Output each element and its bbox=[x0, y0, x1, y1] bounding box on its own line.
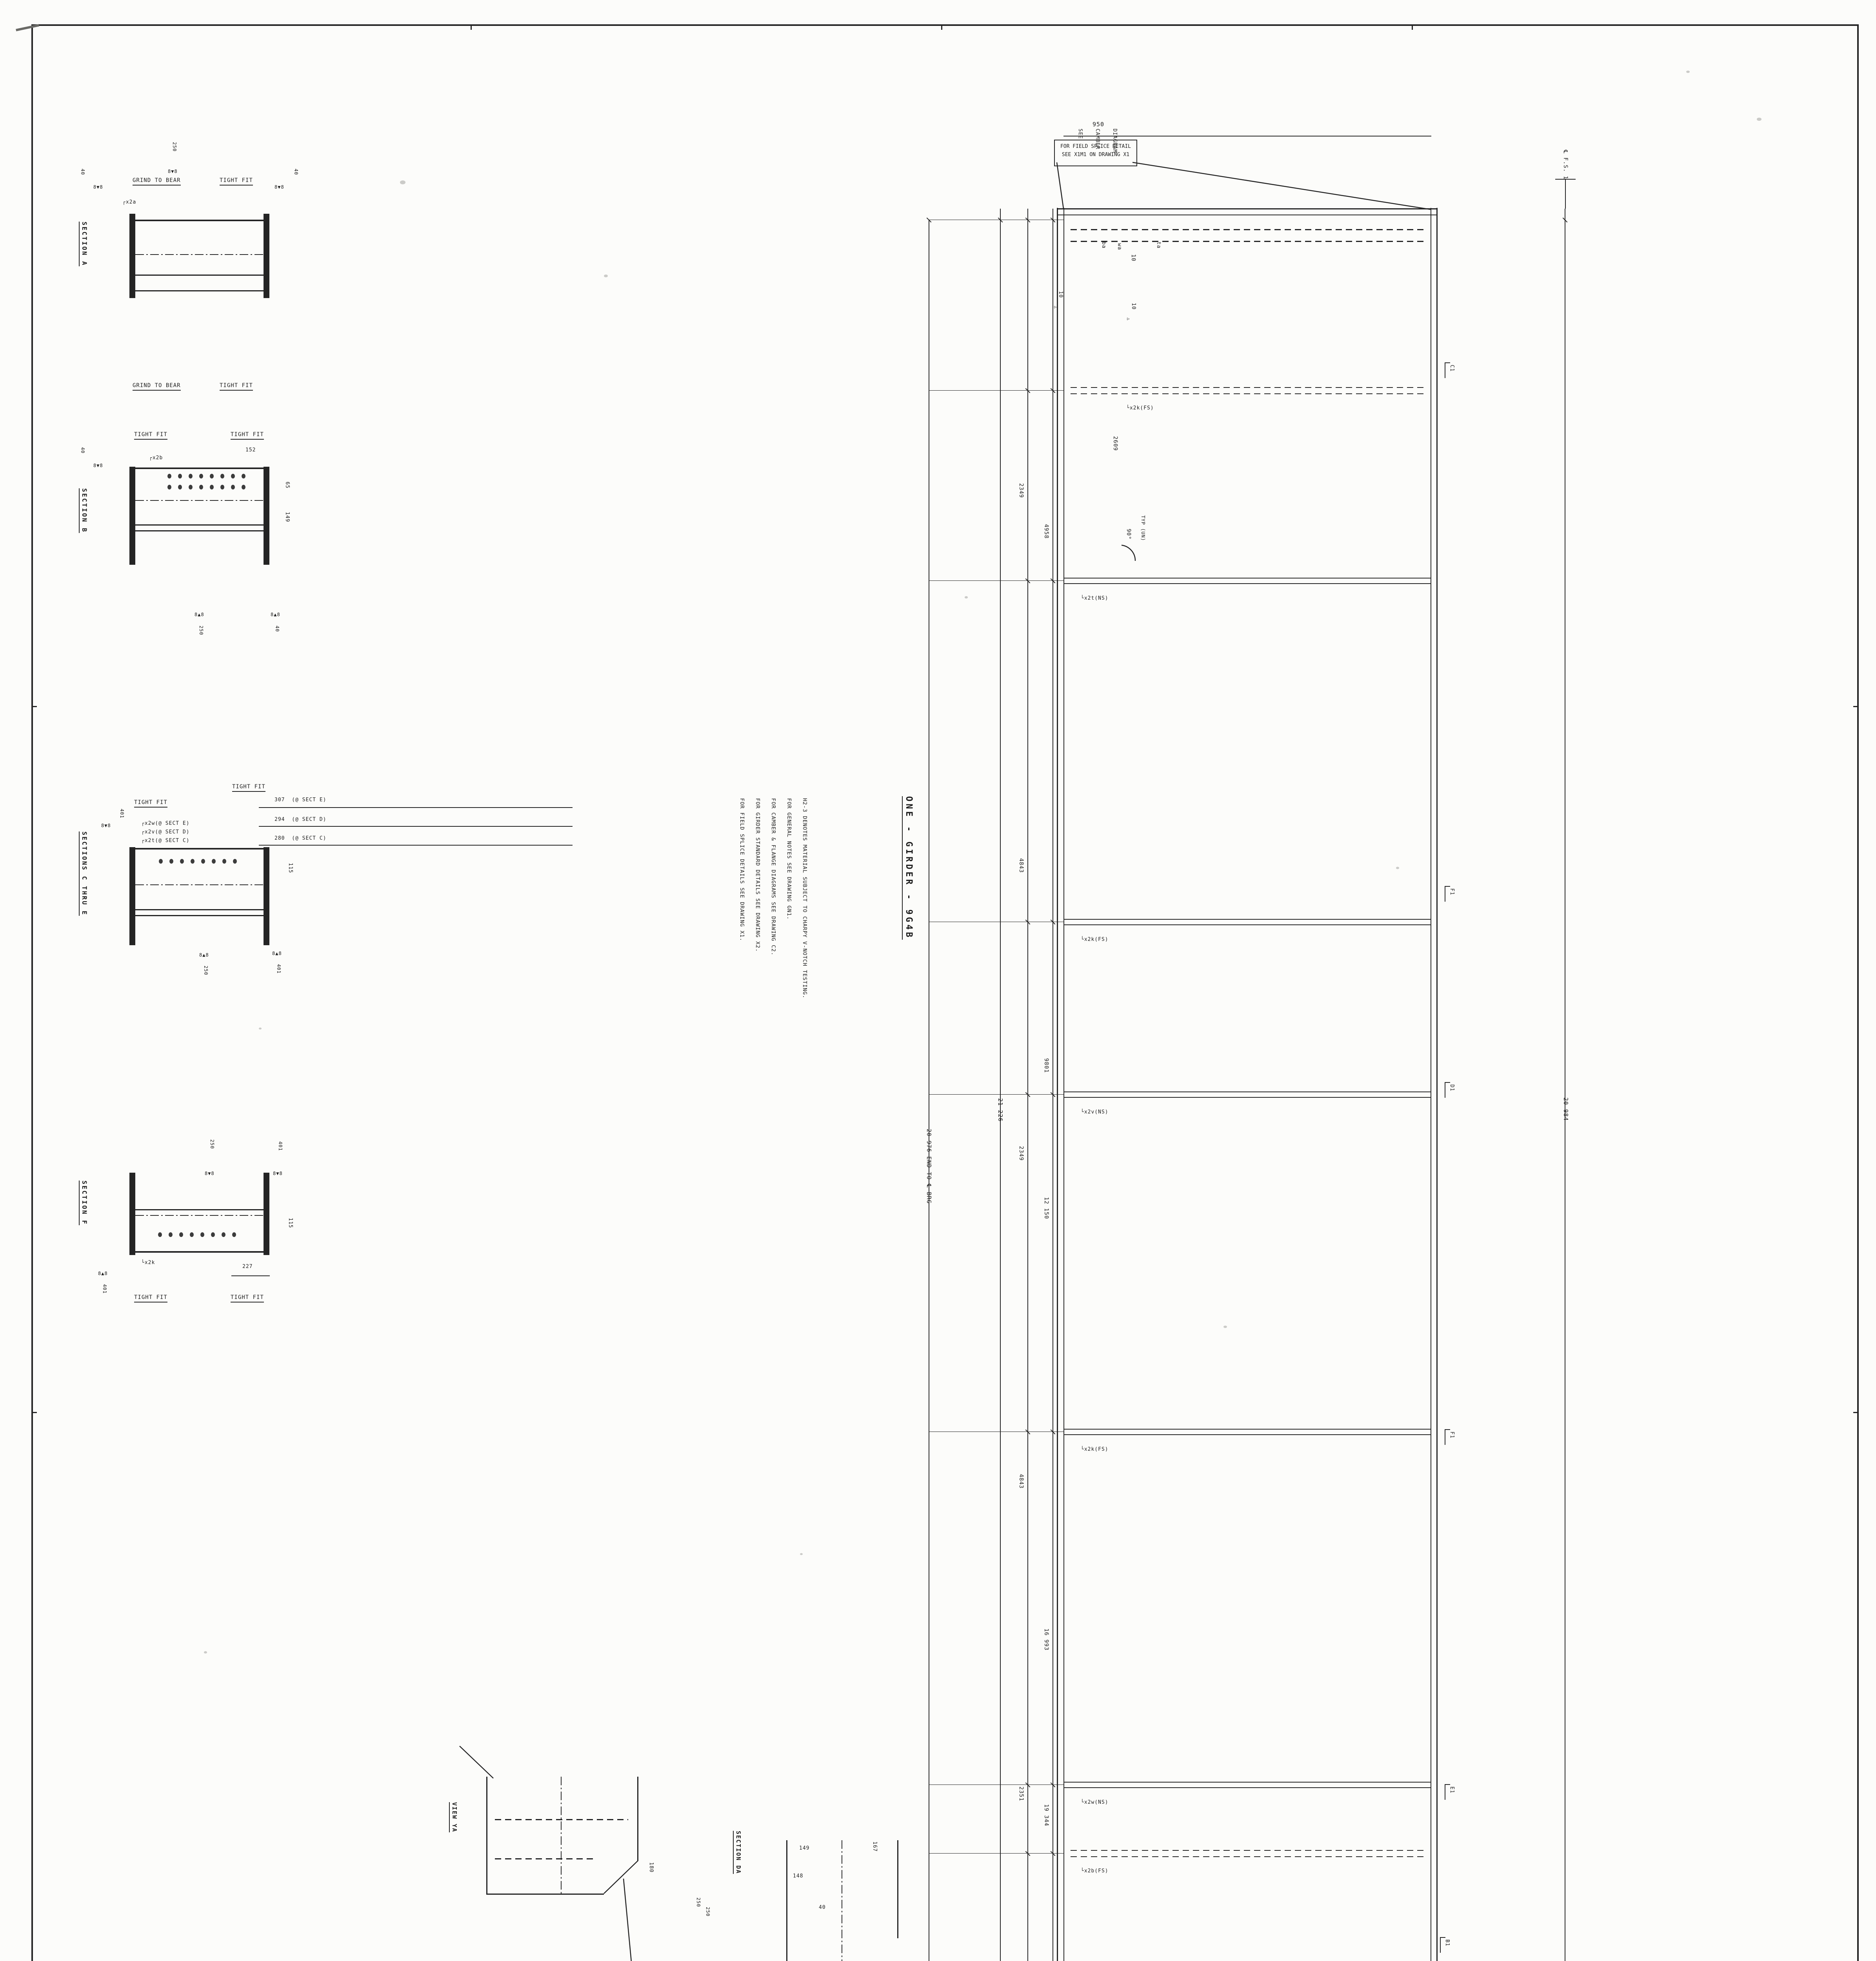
weld-flag-icon-1: ▷ bbox=[1054, 304, 1057, 309]
section-ce-tight-l: TIGHT FIT bbox=[134, 799, 167, 808]
dim-chain-value: 2609 bbox=[1112, 436, 1118, 451]
section-f-mark: └x2k bbox=[141, 1260, 155, 1266]
bolt bbox=[220, 474, 224, 478]
bolt bbox=[189, 485, 193, 489]
splice-bolt-row-1 bbox=[1071, 229, 1423, 230]
weld-mark-ba: ba bbox=[1101, 242, 1107, 249]
section-ce-weld-tail-left: 401 bbox=[119, 809, 125, 819]
bolt bbox=[231, 485, 235, 489]
section-f-weld-tail-left: 401 bbox=[102, 1284, 107, 1294]
ext-line bbox=[929, 1432, 1063, 1432]
bolt bbox=[167, 474, 171, 478]
section-f-weld-top: 8▼8 bbox=[205, 1171, 215, 1176]
stiffener-label: └x2t(NS) bbox=[1081, 595, 1109, 601]
weld-size-2: 10 bbox=[1131, 303, 1136, 310]
section-b-dim149: 149 bbox=[284, 512, 290, 522]
section-ce-dim-307: 307 (@ SECT E) bbox=[274, 797, 326, 803]
see-camber-upper-2: CAMBER bbox=[1094, 129, 1100, 149]
section-a-weld-tail-left: 40 bbox=[80, 169, 85, 175]
section-flag: F1 bbox=[1449, 1432, 1455, 1439]
bolt bbox=[190, 1232, 194, 1237]
dim-chain-value: 9801 bbox=[1043, 1058, 1049, 1073]
flag-line bbox=[1445, 1082, 1450, 1083]
flag-line bbox=[1445, 886, 1450, 887]
border-tick bbox=[31, 706, 37, 707]
border-tick bbox=[1853, 706, 1859, 707]
flag-line bbox=[1440, 1937, 1445, 1938]
section-a-weld-right: 8▼8 bbox=[274, 184, 284, 190]
border-left bbox=[31, 24, 33, 1961]
section-b-weld-bot-r: 8▲8 bbox=[271, 612, 280, 617]
dim-overall-21226: 21 226 bbox=[997, 1098, 1004, 1122]
scan-speck bbox=[1396, 867, 1399, 869]
ext-line bbox=[929, 580, 1063, 581]
dimline-20984 bbox=[1565, 209, 1565, 1961]
girder-bottom-flange-outer bbox=[1057, 208, 1058, 1961]
flag-line bbox=[1445, 362, 1445, 378]
note-1: FOR FIELD SPLICE DETAILS SEE DRAWING X1. bbox=[739, 798, 745, 941]
bolt bbox=[200, 1232, 204, 1237]
section-b-weld-tail-bot: 250 bbox=[198, 626, 204, 635]
section-a-mark: ┌x2a bbox=[122, 199, 136, 205]
bolt bbox=[222, 859, 226, 864]
stiffener-line bbox=[1064, 919, 1431, 920]
bolt bbox=[178, 474, 182, 478]
view-ya-title: VIEW YA bbox=[449, 1802, 458, 1832]
scan-speck bbox=[1757, 118, 1761, 121]
girder-top-flange-outer bbox=[1436, 208, 1438, 1961]
stiffener-line bbox=[1064, 1787, 1431, 1788]
bolt bbox=[212, 859, 216, 864]
section-da-title: SECTION DA bbox=[733, 1831, 742, 1874]
stiffener-dashed bbox=[1071, 1856, 1423, 1857]
dimline-chain-b bbox=[1053, 209, 1053, 1961]
section-ce-title: SECTIONS C THRU E bbox=[79, 831, 88, 916]
flag-line bbox=[1445, 1784, 1445, 1800]
flag-line bbox=[1445, 1784, 1450, 1785]
angle-typ-note: TYP (UN) bbox=[1140, 515, 1146, 541]
drawing-title: ONE - GIRDER - 9G4B bbox=[902, 796, 914, 940]
scan-mark-topleft bbox=[13, 9, 39, 31]
section-b-weld-left: 8▼8 bbox=[93, 463, 103, 468]
border-top bbox=[31, 24, 1859, 26]
bolt bbox=[210, 485, 214, 489]
bolt bbox=[233, 859, 237, 864]
ext-line bbox=[929, 1853, 1063, 1854]
linework-overlay bbox=[0, 0, 1876, 1961]
note-5: H2-3 DENOTES MATERIAL SUBJECT TO CHARPY … bbox=[802, 798, 808, 999]
note-3: FOR CAMBER & FLANGE DIAGRAMS SEE DRAWING… bbox=[770, 798, 776, 956]
border-right bbox=[1857, 24, 1859, 1961]
section-f-dim227: 227 bbox=[242, 1264, 253, 1270]
ext-line bbox=[929, 390, 1063, 391]
section-a-tight-top: TIGHT FIT bbox=[220, 177, 253, 186]
bolt bbox=[199, 485, 203, 489]
bolt bbox=[232, 1232, 236, 1237]
border-tick bbox=[1853, 1412, 1859, 1413]
section-b-weld-bot: 8▲8 bbox=[195, 612, 204, 617]
bolt bbox=[220, 485, 224, 489]
section-f-weld-tail-top: 250 bbox=[209, 1139, 215, 1149]
dim-chain-value: 4843 bbox=[1018, 858, 1024, 873]
dim-chain-value: 2351 bbox=[1018, 1786, 1024, 1801]
stiffener-label: └x2w(NS) bbox=[1081, 1799, 1109, 1805]
border-tick bbox=[1412, 24, 1413, 30]
girder-bottom-flange-inner bbox=[1063, 208, 1064, 1961]
bolt bbox=[210, 474, 214, 478]
section-f-dim115: 115 bbox=[287, 1218, 293, 1228]
weld-mark-wa: wa bbox=[1116, 243, 1122, 250]
section-b-tight-tl: TIGHT FIT bbox=[134, 431, 167, 440]
stiffener-label: └x2k(FS) bbox=[1081, 937, 1109, 942]
ext-line bbox=[929, 220, 1063, 220]
weld-mark-ta: ta bbox=[1156, 242, 1162, 249]
view-ya-dim180: 180 bbox=[648, 1862, 654, 1872]
section-da-weld-250a: 250 bbox=[696, 1897, 701, 1907]
girder-end-line-1 bbox=[1057, 208, 1437, 209]
scan-speck bbox=[204, 1651, 207, 1654]
section-ce-weld-bot-r: 8▲8 bbox=[272, 951, 282, 956]
girder-end-line-2 bbox=[1057, 215, 1437, 215]
section-ce-mark-3: ┌x2t(@ SECT C) bbox=[141, 838, 190, 844]
section-ce-weld-left: 8▼8 bbox=[101, 823, 111, 828]
dim-chain-value: 4843 bbox=[1018, 1474, 1024, 1489]
bolt bbox=[201, 859, 205, 864]
flag-line bbox=[1440, 1937, 1441, 1953]
section-ce-dim-280: 280 (@ SECT C) bbox=[274, 835, 326, 841]
dim-chain-value: 2349 bbox=[1018, 1146, 1024, 1161]
bolt bbox=[211, 1232, 215, 1237]
note-2: FOR GIRDER STANDARD DETAILS SEE DRAWING … bbox=[754, 798, 761, 952]
section-da-dim167: 167 bbox=[872, 1841, 878, 1852]
section-a-weld-tail-right: 40 bbox=[293, 169, 299, 175]
bolt bbox=[159, 859, 163, 864]
section-f-weld-top-r: 8▼8 bbox=[273, 1171, 283, 1176]
section-flag: B1 bbox=[1444, 1939, 1450, 1946]
see-camber-upper-1: SEE bbox=[1077, 129, 1083, 139]
section-da-weld-250b: 250 bbox=[705, 1907, 711, 1917]
dim-overall-20976: 20 976 END TO ℄ BRG bbox=[925, 1129, 933, 1204]
angle-note: 90° bbox=[1125, 529, 1132, 540]
note-4: FOR GENERAL NOTES SEE DRAWING GN1. bbox=[786, 798, 792, 920]
cl-fs1-label: ℄ F.S. 1 bbox=[1562, 150, 1569, 180]
section-a-weld-tail-top: 250 bbox=[172, 142, 177, 152]
section-b-tight-tr: TIGHT FIT bbox=[231, 431, 264, 440]
dim-chain-value: 12 150 bbox=[1043, 1197, 1049, 1219]
dim-chain-value: 16 993 bbox=[1043, 1628, 1049, 1651]
bolt bbox=[191, 859, 195, 864]
stiffener-dashed bbox=[1071, 1850, 1423, 1851]
dim-chain-value: 2349 bbox=[1018, 483, 1024, 498]
dim-chain-value: 10 bbox=[1130, 254, 1136, 262]
stiffener-line bbox=[1064, 578, 1431, 578]
weld-flag-icon-2: ▷ bbox=[1127, 316, 1130, 321]
scan-speck bbox=[400, 180, 405, 184]
ext-line bbox=[929, 1094, 1063, 1095]
section-ce-weld-bot: 8▲8 bbox=[199, 952, 209, 958]
stiffener-line bbox=[1064, 1434, 1431, 1435]
ext-line bbox=[929, 922, 1063, 922]
bolt bbox=[178, 485, 182, 489]
section-flag: C1 bbox=[1449, 365, 1455, 372]
dim-chain-value: 4958 bbox=[1043, 524, 1049, 539]
section-a-grind-top: GRIND TO BEAR bbox=[133, 177, 181, 186]
section-f-tight-bl: TIGHT FIT bbox=[134, 1294, 167, 1302]
section-ce-mark-1: ┌x2w(@ SECT E) bbox=[141, 820, 190, 826]
section-a-grind-bot: GRIND TO BEAR bbox=[133, 382, 181, 391]
bolt bbox=[242, 474, 245, 478]
stiffener-label: └x2b(FS) bbox=[1081, 1868, 1109, 1874]
section-flag: E1 bbox=[1449, 1786, 1455, 1794]
section-f-tight-br: TIGHT FIT bbox=[231, 1294, 264, 1302]
section-f-weld-tail-top-r: 401 bbox=[278, 1141, 283, 1151]
bolt bbox=[222, 1232, 225, 1237]
bolt bbox=[189, 474, 193, 478]
section-da-dim149: 149 bbox=[799, 1845, 809, 1851]
border-tick bbox=[31, 1412, 37, 1413]
section-f-title: SECTION F bbox=[79, 1181, 88, 1225]
stiffener-label: └x2k(FS) bbox=[1081, 1446, 1109, 1452]
scan-speck bbox=[259, 1028, 262, 1030]
section-b-weld-tail-bot-r: 40 bbox=[274, 626, 280, 632]
ext-line bbox=[929, 1785, 1063, 1785]
drawing-sheet: 950 FOR FIELD SPLICE DETAIL SEE X1M1 ON … bbox=[0, 0, 1876, 1961]
weld-size-1: 10 bbox=[1058, 291, 1063, 298]
dim-950-flange: 950 bbox=[1093, 121, 1104, 128]
section-b-title: SECTION B bbox=[79, 488, 88, 533]
section-ce-dim-294: 294 (@ SECT D) bbox=[274, 817, 326, 822]
section-a-weld-left: 8▼8 bbox=[93, 184, 103, 190]
dim-chain-value: 19 344 bbox=[1043, 1804, 1049, 1826]
stiffener-dashed bbox=[1071, 387, 1423, 388]
section-ce-weld-tail-bot-r: 401 bbox=[276, 964, 282, 974]
bolt bbox=[167, 485, 171, 489]
section-flag: F1 bbox=[1449, 888, 1455, 895]
bolt bbox=[231, 474, 235, 478]
border-tick bbox=[941, 24, 942, 30]
dim-overall-20984: 20 984 bbox=[1562, 1097, 1569, 1121]
scan-speck bbox=[604, 275, 608, 277]
section-a-tight-bot: TIGHT FIT bbox=[220, 382, 253, 391]
bolt bbox=[169, 859, 173, 864]
stiffener-label: └x2v(NS) bbox=[1081, 1109, 1109, 1115]
section-ce-weld-tail-bot: 250 bbox=[203, 966, 209, 975]
flag-line bbox=[1445, 1429, 1450, 1430]
bolt bbox=[158, 1232, 162, 1237]
dimline-chain-a bbox=[1027, 209, 1028, 1961]
border-tick bbox=[471, 24, 472, 30]
section-a-title: SECTION A bbox=[79, 222, 88, 266]
section-da-dim40: 40 bbox=[819, 1905, 826, 1910]
stiffener-dashed bbox=[1071, 393, 1423, 394]
section-a-weld-top: 8▼8 bbox=[168, 169, 178, 174]
section-ce-tight-r: TIGHT FIT bbox=[232, 784, 265, 792]
section-b-dim65: 65 bbox=[284, 482, 290, 489]
stiffener-line bbox=[1064, 583, 1431, 584]
dimline-20976 bbox=[929, 220, 929, 1961]
section-ce-mark-2: ┌x2v(@ SECT D) bbox=[141, 829, 190, 835]
section-b-mark: ┌x2b bbox=[149, 455, 163, 461]
section-ce-dim115: 115 bbox=[287, 863, 293, 873]
bolt bbox=[179, 1232, 183, 1237]
section-da-dim148: 148 bbox=[793, 1873, 803, 1879]
stiffener-line bbox=[1064, 1782, 1431, 1783]
stiffener-line bbox=[1064, 1429, 1431, 1430]
dimline-21226 bbox=[1000, 209, 1001, 1961]
section-f-weld-left: 8▲8 bbox=[98, 1271, 108, 1276]
flag-line bbox=[1445, 1082, 1445, 1098]
stiffener-line bbox=[1064, 1097, 1431, 1098]
field-splice-note-line2: SEE X1M1 ON DRAWING X1 bbox=[1055, 151, 1136, 159]
girder-top-flange-inner bbox=[1431, 208, 1431, 1961]
stiffener-line bbox=[1064, 1091, 1431, 1092]
scan-speck bbox=[965, 596, 968, 598]
bolt bbox=[199, 474, 203, 478]
see-camber-upper-3: DIAGRAM bbox=[1112, 129, 1118, 153]
bolt bbox=[169, 1232, 173, 1237]
flag-line bbox=[1445, 362, 1450, 363]
bolt bbox=[180, 859, 184, 864]
section-b-weld-tail-left: 40 bbox=[80, 447, 85, 453]
scan-speck bbox=[800, 1553, 803, 1555]
splice-bolt-row-2 bbox=[1071, 241, 1423, 242]
section-b-dim152: 152 bbox=[245, 447, 256, 453]
scan-speck bbox=[1686, 71, 1690, 73]
flag-line bbox=[1445, 1429, 1445, 1445]
section-flag: D1 bbox=[1449, 1084, 1455, 1091]
dim-950-line bbox=[1063, 136, 1431, 136]
bolt bbox=[242, 485, 245, 489]
stiffener-line bbox=[1064, 924, 1431, 925]
stiffener-label: └x2k(FS) bbox=[1126, 405, 1154, 411]
flag-line bbox=[1445, 886, 1445, 902]
scan-speck bbox=[1223, 1326, 1227, 1328]
